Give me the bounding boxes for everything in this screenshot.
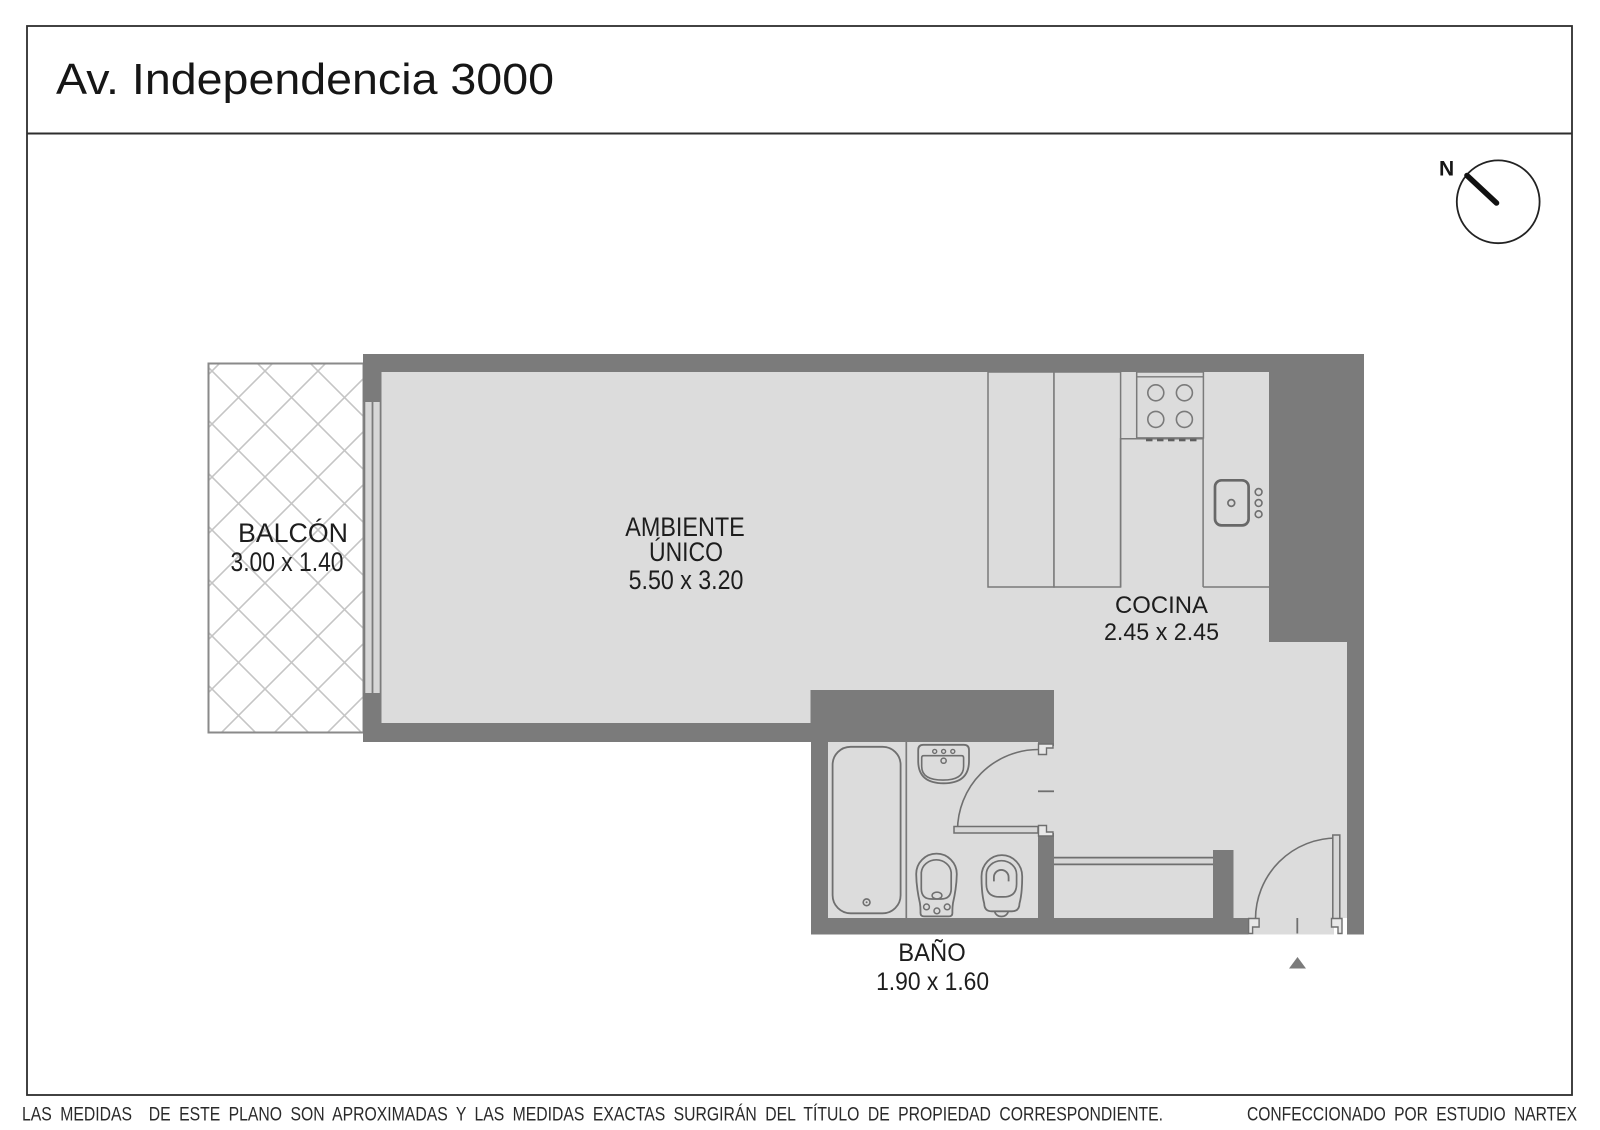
svg-text:ÚNICO: ÚNICO <box>649 536 723 567</box>
svg-text:CONFECCIONADO POR ESTUDIO NART: CONFECCIONADO POR ESTUDIO NARTEX <box>1247 1103 1577 1125</box>
svg-text:BAÑO: BAÑO <box>898 938 965 967</box>
svg-text:BALCÓN: BALCÓN <box>238 517 348 548</box>
svg-text:2.45 x 2.45: 2.45 x 2.45 <box>1104 619 1219 646</box>
svg-text:LAS MEDIDAS DE ESTE PLANO SON: LAS MEDIDAS DE ESTE PLANO SON APROXIMADA… <box>22 1102 1163 1125</box>
svg-text:3.00 x 1.40: 3.00 x 1.40 <box>231 547 344 577</box>
svg-text:5.50 x 3.20: 5.50 x 3.20 <box>629 565 744 595</box>
svg-text:Av. Independencia 3000: Av. Independencia 3000 <box>56 55 554 104</box>
svg-text:COCINA: COCINA <box>1115 592 1209 619</box>
svg-text:1.90 x 1.60: 1.90 x 1.60 <box>876 968 989 996</box>
svg-text:N: N <box>1439 158 1454 181</box>
